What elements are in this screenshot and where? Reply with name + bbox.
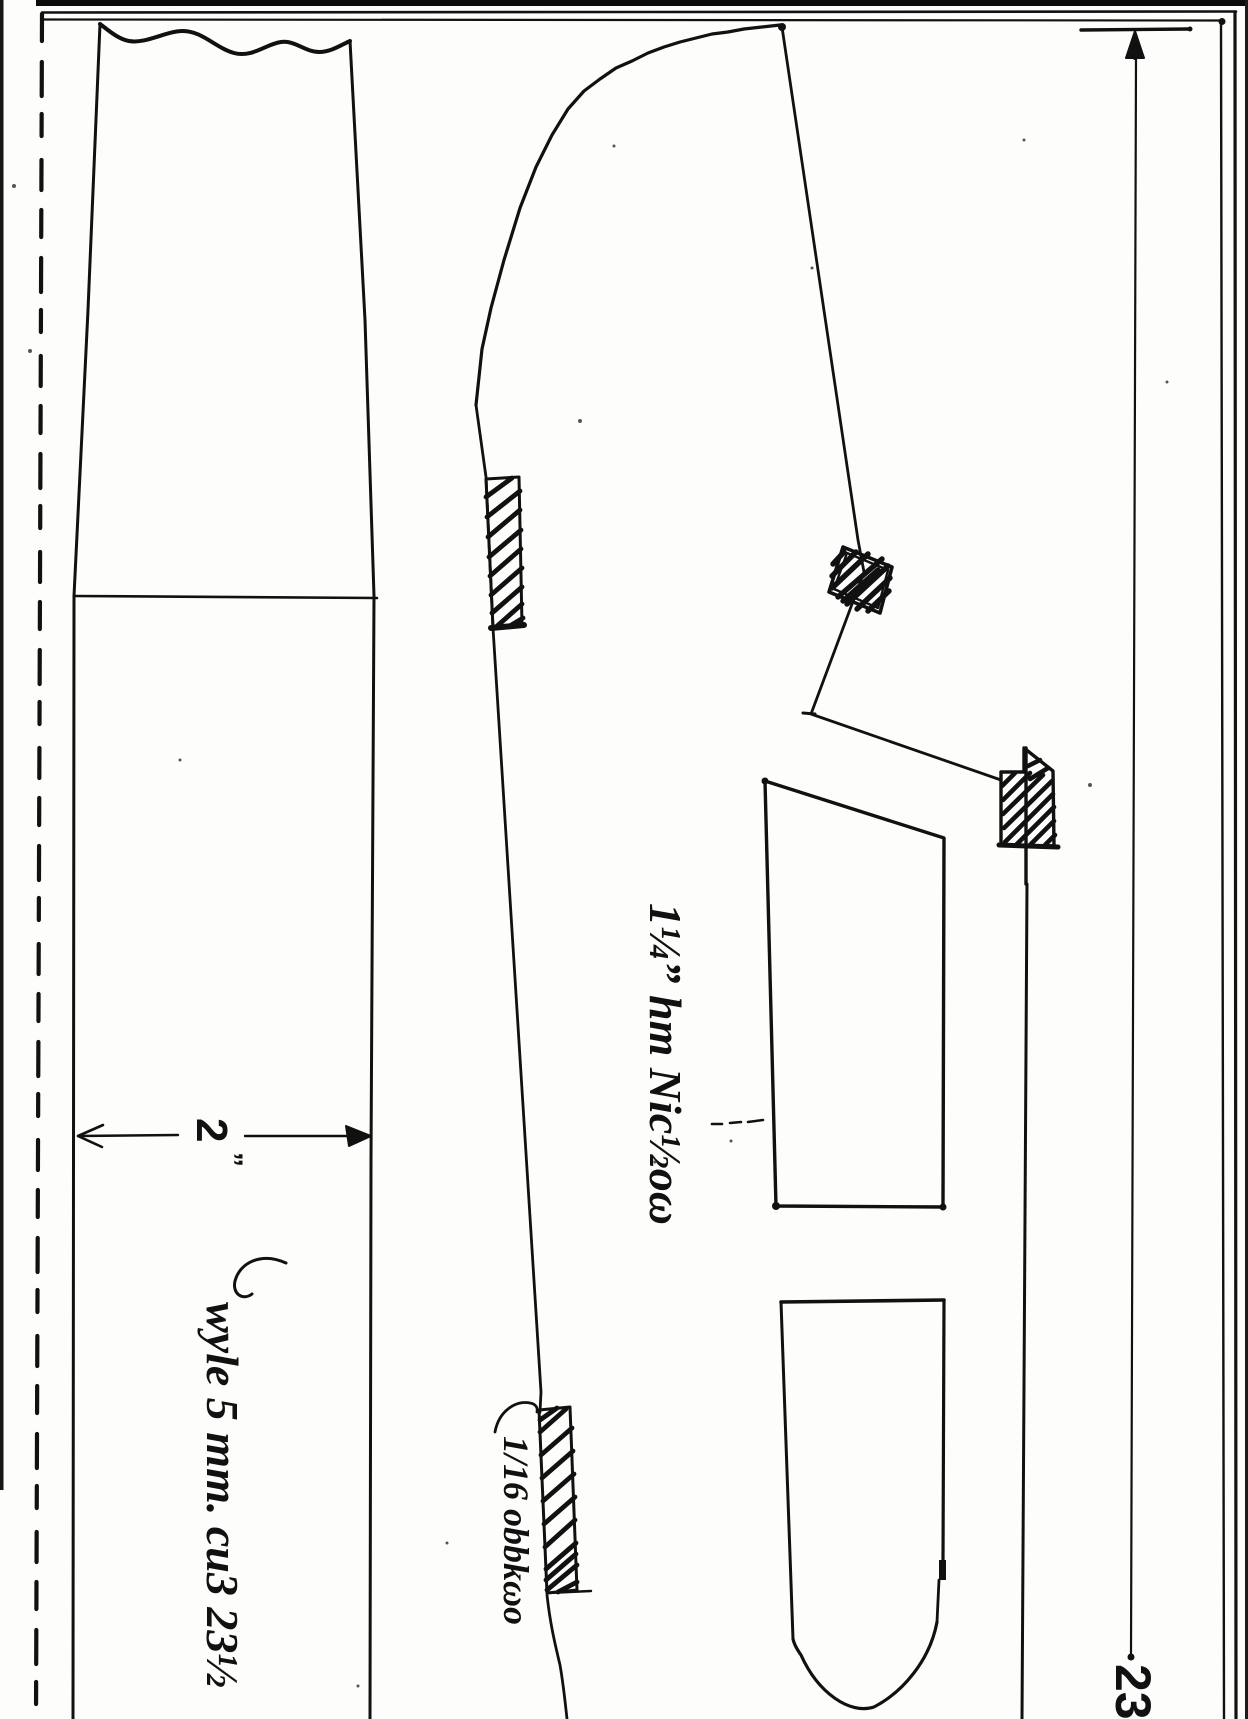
svg-text:wyle 5 mm. cu3 23½: wyle 5 mm. cu3 23½ — [197, 1302, 248, 1688]
svg-text:1¼” hm Nic½oω: 1¼” hm Nic½oω — [640, 903, 691, 1225]
svg-text:”: ” — [215, 1152, 248, 1167]
svg-text:1/16 obbkωo: 1/16 obbkωo — [496, 1436, 536, 1625]
svg-text:2: 2 — [187, 1118, 236, 1142]
svg-text:23: 23 — [1105, 1664, 1161, 1719]
